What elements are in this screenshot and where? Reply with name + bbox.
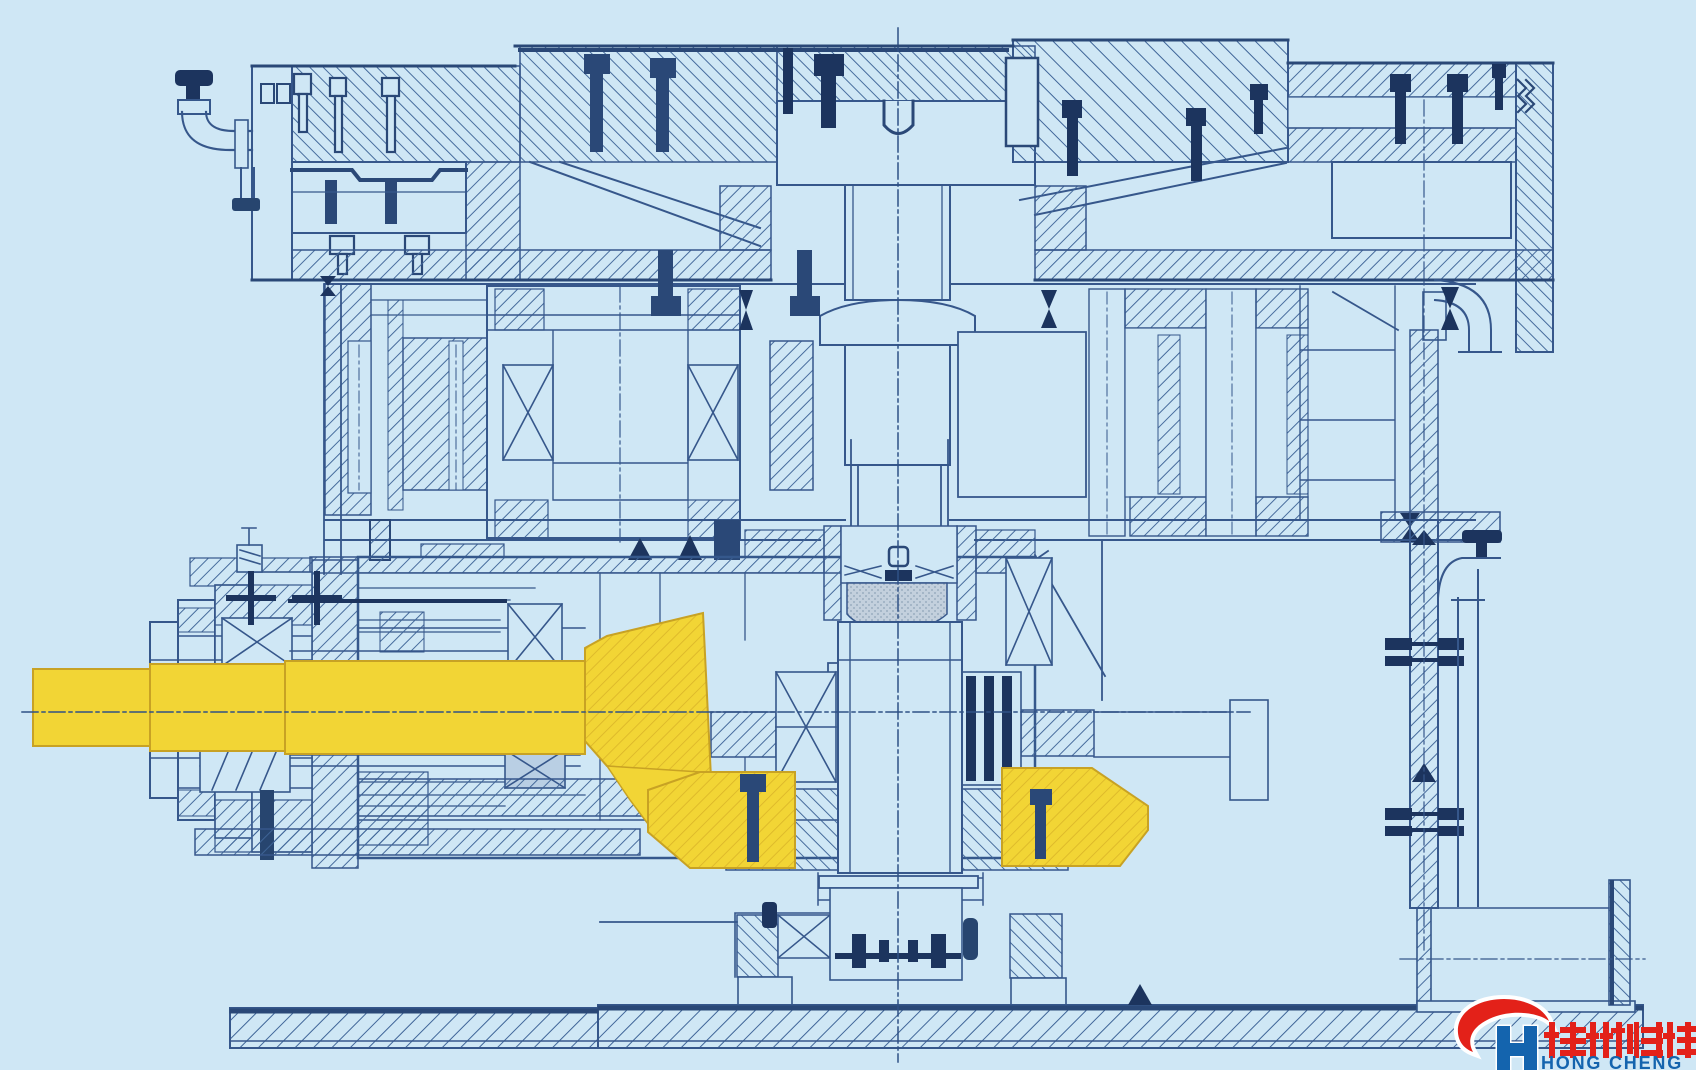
svg-text:HONG CHENG: HONG CHENG — [1541, 1053, 1683, 1070]
